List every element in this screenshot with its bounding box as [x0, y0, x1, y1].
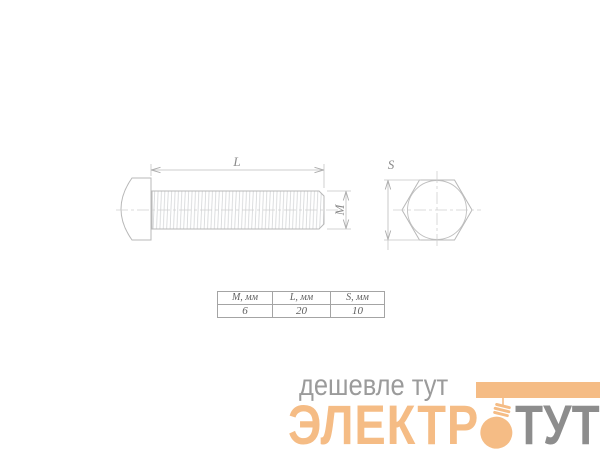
spec-header-m: M, мм: [218, 292, 273, 305]
logo-brand-suffix: ТУТ: [515, 397, 600, 450]
dim-label-l: L: [232, 154, 240, 169]
spec-value-s: 10: [331, 305, 384, 317]
logo-brand-prefix: ЭЛЕКТР: [288, 397, 479, 450]
product-drawing-image: L M S M, мм L, мм S, мм 6 20: [0, 0, 600, 450]
bolt-technical-drawing: L M S: [0, 0, 600, 340]
bolt-side-view: [116, 178, 338, 240]
spec-table: M, мм L, мм S, мм 6 20 10: [217, 291, 385, 318]
bolt-head: [121, 178, 151, 240]
spec-header-l: L, мм: [273, 292, 331, 305]
spec-value-m: 6: [218, 305, 273, 317]
dim-label-s: S: [388, 157, 395, 172]
bolt-end-view: [393, 171, 481, 249]
dimension-length: L: [151, 154, 324, 188]
spec-header-s: S, мм: [331, 292, 384, 305]
spec-value-l: 20: [273, 305, 331, 317]
dim-label-m: M: [332, 203, 347, 216]
